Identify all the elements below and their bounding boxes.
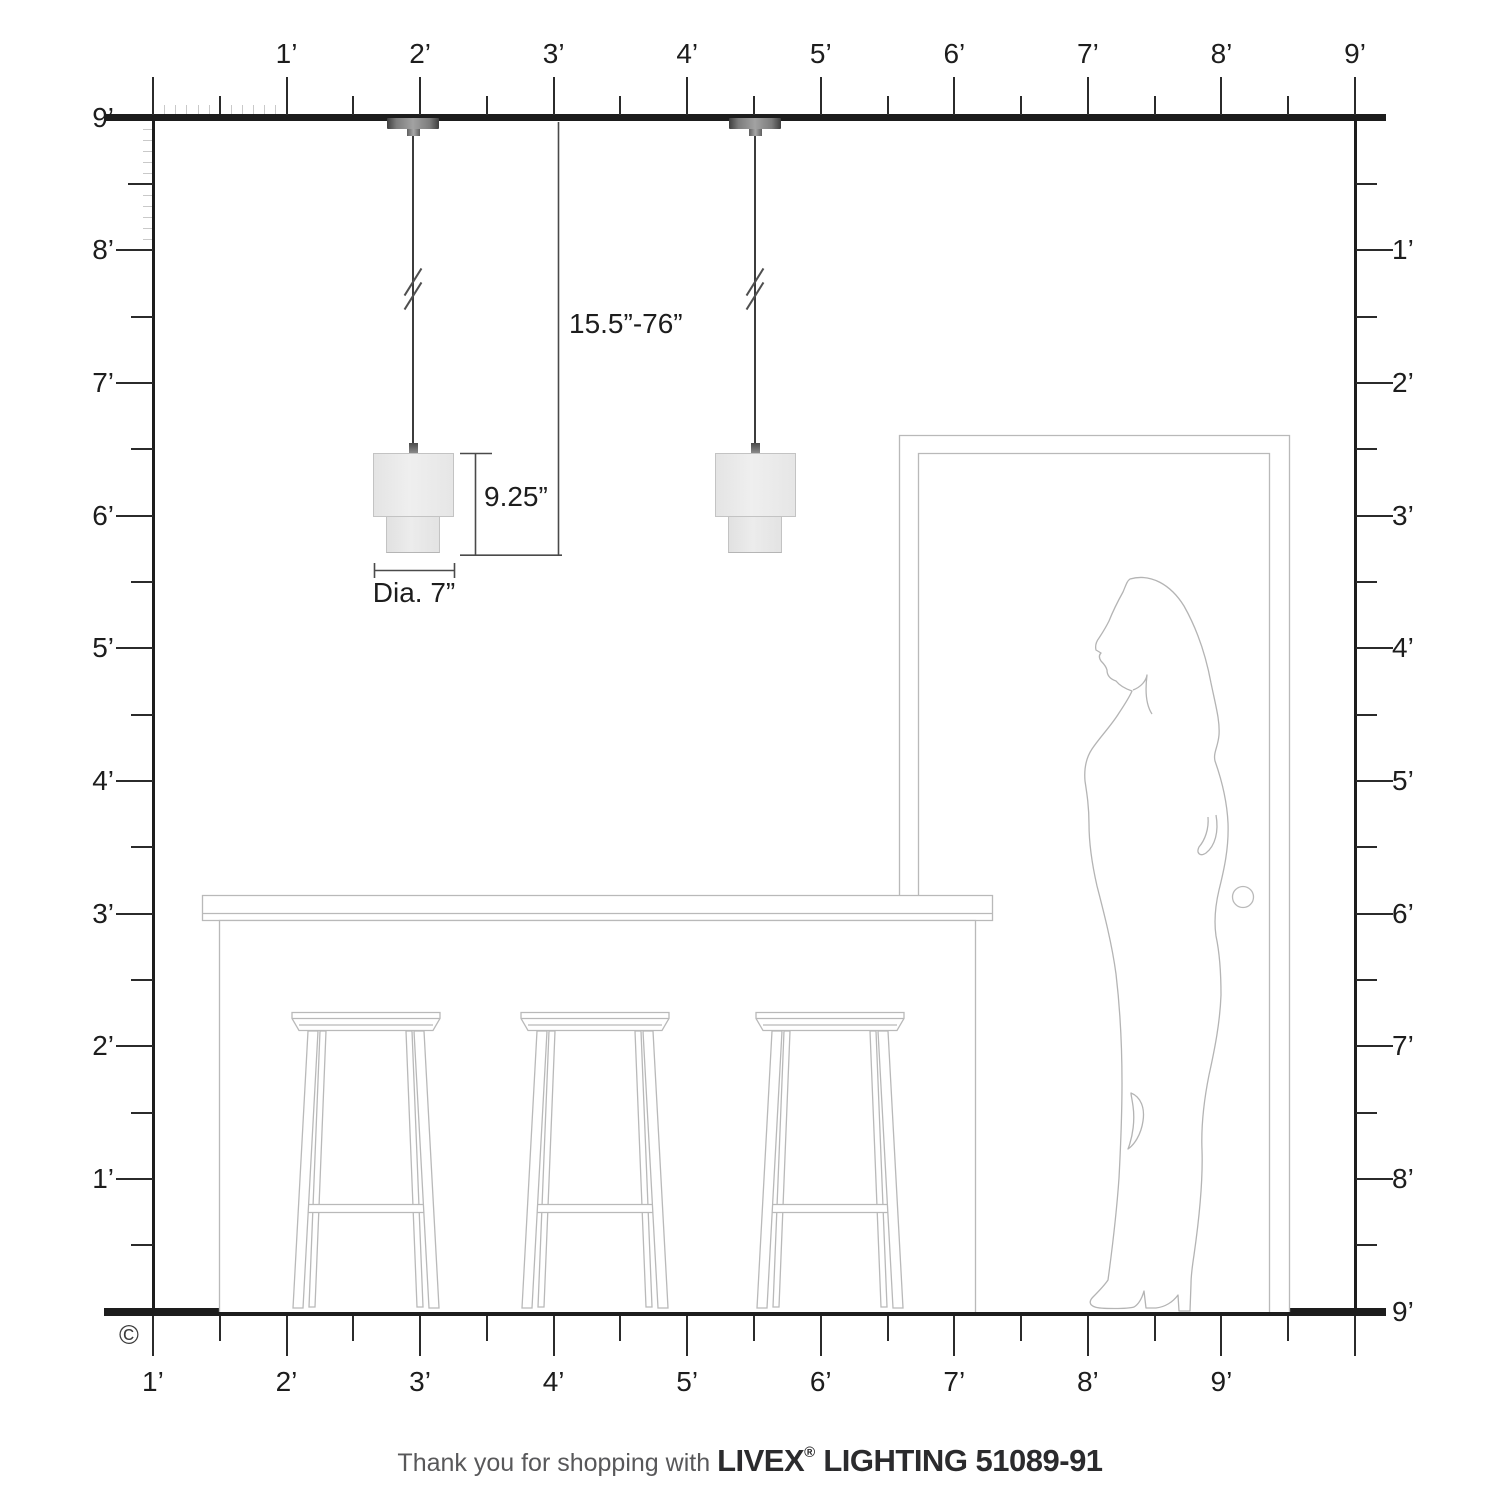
ruler-inch-tick [175,105,176,114]
ruler-half-tick [131,448,153,450]
ruler-label-right: 6’ [1392,898,1452,930]
island-body [220,921,976,1313]
ruler-half-tick [619,1316,621,1341]
ruler-tick [116,249,153,251]
ruler-label-bottom: 3’ [393,1366,447,1398]
pendant-1-canopy [387,118,439,129]
ruler-label-bottom: 8’ [1061,1366,1115,1398]
ruler-half-tick [753,96,755,115]
door-knob [1233,887,1254,908]
ruler-half-tick [131,1112,153,1114]
ruler-label-right: 7’ [1392,1030,1452,1062]
ruler-half-tick [1356,183,1377,185]
ruler-inch-tick [264,105,265,114]
pendant-2-canopy [729,118,781,129]
ruler-label-top: 3’ [527,38,581,70]
ruler-label-bottom: 2’ [260,1366,314,1398]
ruler-label-top: 1’ [260,38,314,70]
ruler-tick [116,382,153,384]
ruler-label-right: 8’ [1392,1163,1452,1195]
ruler-label-bottom: 9’ [1194,1366,1248,1398]
ruler-inch-tick [231,105,232,114]
ruler-inch-tick [253,105,254,114]
ruler-tick [286,77,288,115]
ruler-tick [1356,1045,1393,1047]
ruler-inch-tick [209,105,210,114]
footer-prefix: Thank you for shopping with [397,1449,717,1477]
ruler-tick [820,1316,822,1356]
ruler-label-top: 4’ [660,38,714,70]
ruler-label-left: 1’ [60,1163,114,1195]
ruler-half-tick [619,96,621,115]
ruler-label-left: 2’ [60,1030,114,1062]
ruler-label-left: 8’ [60,234,114,266]
ruler-inch-tick-6 [128,183,153,185]
ruler-inch-tick [143,129,152,130]
ruler-label-right: 9’ [1392,1296,1452,1328]
drop-range-label: 15.5”-76” [569,308,683,340]
ruler-half-tick [1356,581,1377,583]
ruler-label-top: 5’ [794,38,848,70]
ruler-label-right: 5’ [1392,765,1452,797]
ruler-tick [116,913,153,915]
ruler-tick [116,647,153,649]
ruler-tick [1220,1316,1222,1356]
ruler-tick [820,77,822,115]
ruler-inch-tick [198,105,199,114]
ruler-half-tick [352,96,354,115]
pendant-1-stem [407,129,420,136]
ruler-inch-tick [143,140,152,141]
ruler-half-tick [131,581,153,583]
ruler-inch-tick [143,162,152,163]
ruler-half-tick [1356,846,1377,848]
ruler-label-bottom: 7’ [927,1366,981,1398]
ruler-half-tick [1356,1112,1377,1114]
ruler-inch-tick [143,239,152,240]
ruler-tick [686,1316,688,1356]
ruler-inch-tick [143,206,152,207]
ruler-tick [1356,913,1393,915]
ruler-half-tick [887,1316,889,1341]
scale-diagram: 15.5”-76” 9.25” Dia. 7” Thank you for sh… [0,0,1500,1500]
ruler-tick [116,515,153,517]
ruler-label-right: 3’ [1392,500,1452,532]
ruler-inch-tick [143,151,152,152]
ruler-half-tick [1356,1244,1377,1246]
ruler-half-tick [1154,1316,1156,1341]
ruler-tick [1220,77,1222,115]
ruler-tick [1356,1178,1393,1180]
ruler-tick [1356,780,1393,782]
ruler-tick [116,1178,153,1180]
ruler-half-tick [1020,96,1022,115]
ruler-half-tick [1356,448,1377,450]
ruler-inch-tick [242,105,243,114]
ruler-inch-tick [186,105,187,114]
pendant-2-cord [754,136,756,444]
ruler-tick [953,77,955,115]
shade-height-label: 9.25” [484,481,548,513]
ruler-label-top: 8’ [1194,38,1248,70]
ruler-half-tick [1356,979,1377,981]
ruler-label-left: 4’ [60,765,114,797]
ruler-inch-tick [164,105,165,114]
footer-product-number: LIGHTING 51089-91 [815,1443,1102,1478]
ruler-label-bottom: 5’ [660,1366,714,1398]
brand-name: LIVEX [717,1443,804,1478]
ruler-label-right: 4’ [1392,632,1452,664]
ruler-inch-tick-6 [219,96,221,114]
ruler-label-bottom: 4’ [527,1366,581,1398]
ruler-tick [419,77,421,115]
ruler-half-tick [352,1316,354,1341]
ruler-tick [553,1316,555,1356]
ruler-tick [286,1316,288,1356]
ruler-half-tick [219,1316,221,1341]
ruler-tick [116,1045,153,1047]
ruler-half-tick [131,846,153,848]
ruler-label-right: 2’ [1392,367,1452,399]
ruler-label-left: 5’ [60,632,114,664]
ruler-tick [1354,1316,1356,1356]
ruler-tick [953,1316,955,1356]
ruler-tick [1354,77,1356,115]
pendant-2-shade-upper [715,453,796,517]
ruler-half-tick [1356,714,1377,716]
shade-diameter-label: Dia. 7” [364,577,464,609]
ruler-tick [1356,647,1393,649]
ruler-label-left: 3’ [60,898,114,930]
ruler-half-tick [486,96,488,115]
ruler-tick [1087,1316,1089,1356]
ruler-label-top: 7’ [1061,38,1115,70]
ruler-half-tick [1287,1316,1289,1341]
diameter-dimension-line [374,563,455,578]
ruler-inch-tick [275,105,276,114]
ruler-half-tick [753,1316,755,1341]
ruler-tick [1087,77,1089,115]
ruler-tick [1356,515,1393,517]
ruler-label-bottom: 1’ [126,1366,180,1398]
ruler-label-right: 1’ [1392,234,1452,266]
pendant-1-cord [412,136,414,444]
ruler-label-left: 7’ [60,367,114,399]
registered-mark-icon: ® [804,1444,815,1461]
ruler-half-tick [1287,96,1289,115]
ruler-half-tick [131,1244,153,1246]
ruler-tick [1356,382,1393,384]
ruler-tick [686,77,688,115]
ruler-label-top: 2’ [393,38,447,70]
ruler-tick [152,1316,154,1356]
ruler-inch-tick [143,217,152,218]
ruler-half-tick [887,96,889,115]
ruler-inch-tick [143,195,152,196]
ruler-tick [553,77,555,115]
island-countertop [203,896,993,921]
pendant-2-shade-lower [728,516,782,553]
ruler-inch-tick [143,173,152,174]
ruler-half-tick [1020,1316,1022,1341]
ruler-inch-tick [143,228,152,229]
ruler-half-tick [1154,96,1156,115]
ruler-label-left: 9’ [60,102,114,134]
ruler-tick [1356,249,1393,251]
ruler-tick [419,1316,421,1356]
ruler-label-left: 6’ [60,500,114,532]
ruler-half-tick [131,979,153,981]
ruler-label-top: 9’ [1328,38,1382,70]
pendant-1-shade-upper [373,453,454,517]
pendant-2-stem [749,129,762,136]
pendant-1-shade-lower [386,516,440,553]
ruler-tick [152,77,154,115]
ruler-label-top: 6’ [927,38,981,70]
ruler-half-tick [486,1316,488,1341]
ruler-half-tick [131,316,153,318]
footer-text: Thank you for shopping with LIVEX® LIGHT… [0,1436,1500,1484]
furniture-layer [0,0,1500,1500]
ruler-tick [116,780,153,782]
copyright-icon: © [119,1320,139,1351]
ruler-half-tick [1356,316,1377,318]
ruler-label-bottom: 6’ [794,1366,848,1398]
ruler-half-tick [131,714,153,716]
